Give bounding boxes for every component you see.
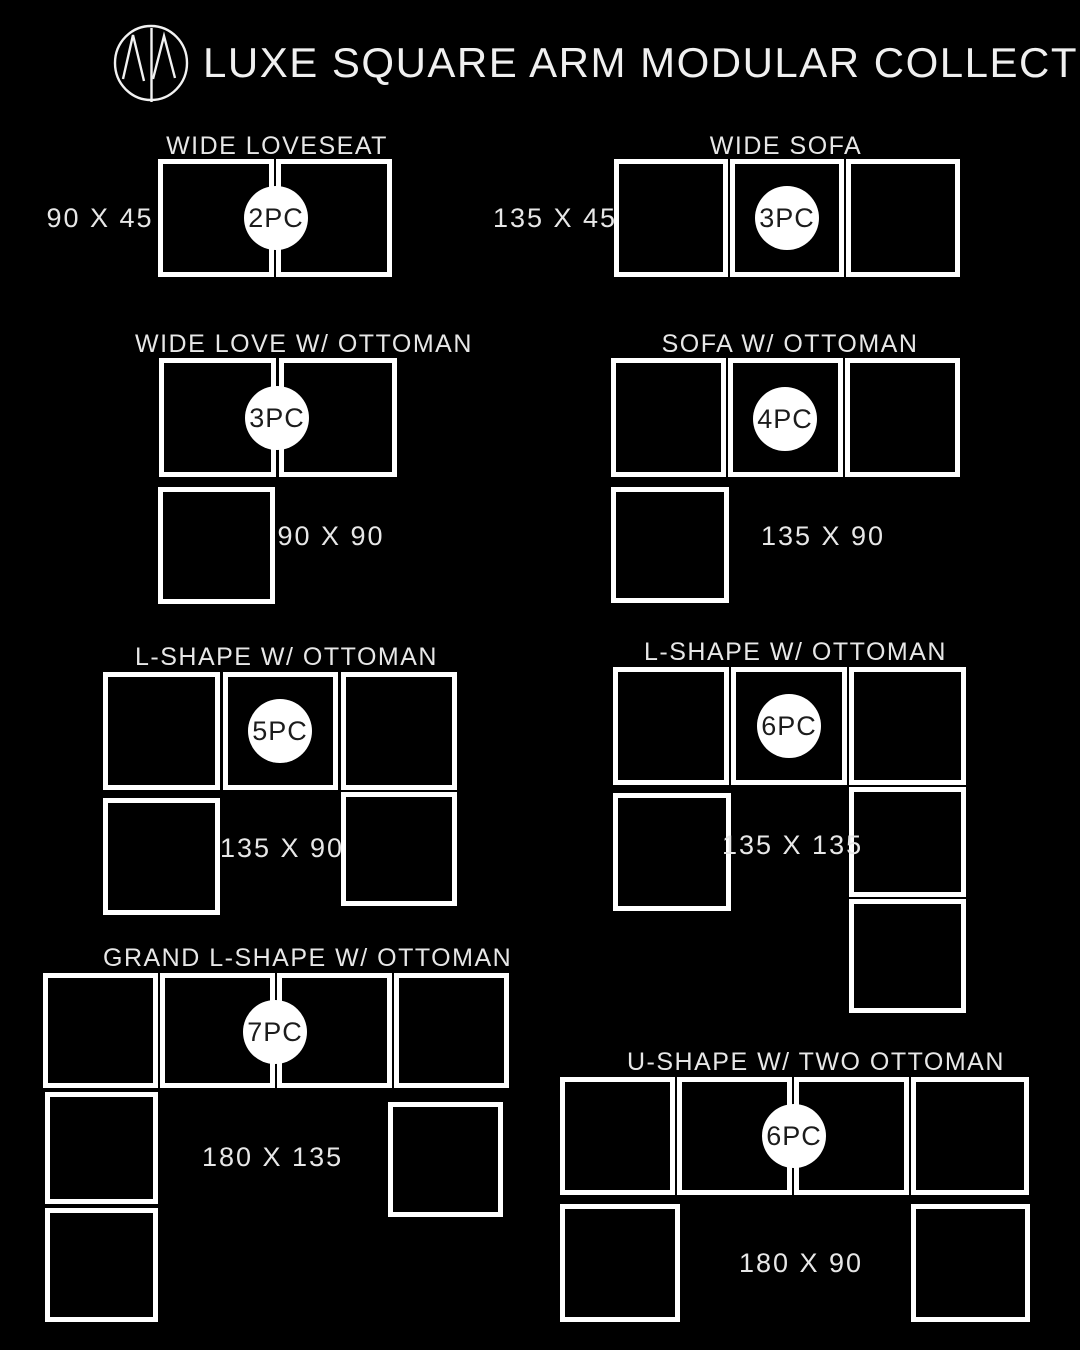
piece-count-badge: 3PC bbox=[755, 186, 819, 250]
config-title-u-shape-two-ottoman: U-SHAPE W/ TWO OTTOMAN bbox=[627, 1047, 977, 1077]
dimension-label: 180 X 135 bbox=[202, 1142, 342, 1172]
seat-module bbox=[614, 159, 728, 277]
ottoman-module bbox=[388, 1102, 503, 1217]
seat-module bbox=[613, 667, 729, 785]
piece-count-badge: 5PC bbox=[248, 699, 312, 763]
ottoman-module bbox=[611, 487, 729, 603]
nm-monogram-logo-icon bbox=[112, 23, 190, 103]
dimension-label: 90 X 90 bbox=[261, 521, 401, 551]
corner-seat-module bbox=[849, 899, 966, 1013]
piece-count-badge: 2PC bbox=[244, 186, 308, 250]
config-title-wide-love-ottoman: WIDE LOVE W/ OTTOMAN bbox=[135, 329, 435, 359]
seat-module bbox=[846, 159, 960, 277]
config-title-l-shape-ottoman-5pc: L-SHAPE W/ OTTOMAN bbox=[135, 642, 435, 672]
dimension-label: 135 X 90 bbox=[753, 521, 893, 551]
piece-count-badge: 6PC bbox=[762, 1104, 826, 1168]
seat-module bbox=[103, 672, 220, 790]
poster-canvas: LUXE SQUARE ARM MODULAR COLLECTION WIDE … bbox=[0, 0, 1080, 1350]
corner-seat-module bbox=[849, 787, 966, 897]
piece-count-badge: 6PC bbox=[757, 694, 821, 758]
dimension-label: 180 X 90 bbox=[731, 1248, 871, 1278]
page-title: LUXE SQUARE ARM MODULAR COLLECTION bbox=[203, 40, 1080, 86]
corner-seat-module bbox=[45, 1092, 158, 1204]
ottoman-module bbox=[613, 793, 731, 911]
seat-module bbox=[560, 1077, 675, 1195]
seat-module bbox=[394, 973, 509, 1088]
corner-seat-module bbox=[45, 1208, 158, 1322]
seat-module bbox=[43, 973, 158, 1088]
config-title-l-shape-ottoman-6pc: L-SHAPE W/ OTTOMAN bbox=[644, 637, 944, 667]
ottoman-module bbox=[158, 487, 275, 604]
piece-count-badge: 3PC bbox=[245, 386, 309, 450]
seat-module bbox=[845, 358, 960, 477]
corner-seat-module bbox=[341, 792, 457, 906]
ottoman-module bbox=[103, 798, 220, 915]
dimension-label: 135 X 45 bbox=[485, 203, 625, 233]
seat-module bbox=[849, 667, 966, 785]
seat-module bbox=[911, 1077, 1029, 1195]
ottoman-module bbox=[560, 1204, 680, 1322]
config-title-grand-l-shape-ottoman: GRAND L-SHAPE W/ OTTOMAN bbox=[103, 943, 453, 973]
seat-module bbox=[341, 672, 457, 790]
config-title-wide-sofa: WIDE SOFA bbox=[636, 131, 936, 161]
ottoman-module bbox=[911, 1204, 1030, 1322]
seat-module bbox=[611, 358, 726, 477]
piece-count-badge: 4PC bbox=[753, 387, 817, 451]
dimension-label: 90 X 45 bbox=[30, 203, 170, 233]
piece-count-badge: 7PC bbox=[243, 1000, 307, 1064]
config-title-sofa-ottoman: SOFA W/ OTTOMAN bbox=[640, 329, 940, 359]
config-title-wide-loveseat: WIDE LOVESEAT bbox=[127, 131, 427, 161]
dimension-label: 135 X 90 bbox=[212, 833, 352, 863]
dimension-label: 135 X 135 bbox=[722, 830, 862, 860]
